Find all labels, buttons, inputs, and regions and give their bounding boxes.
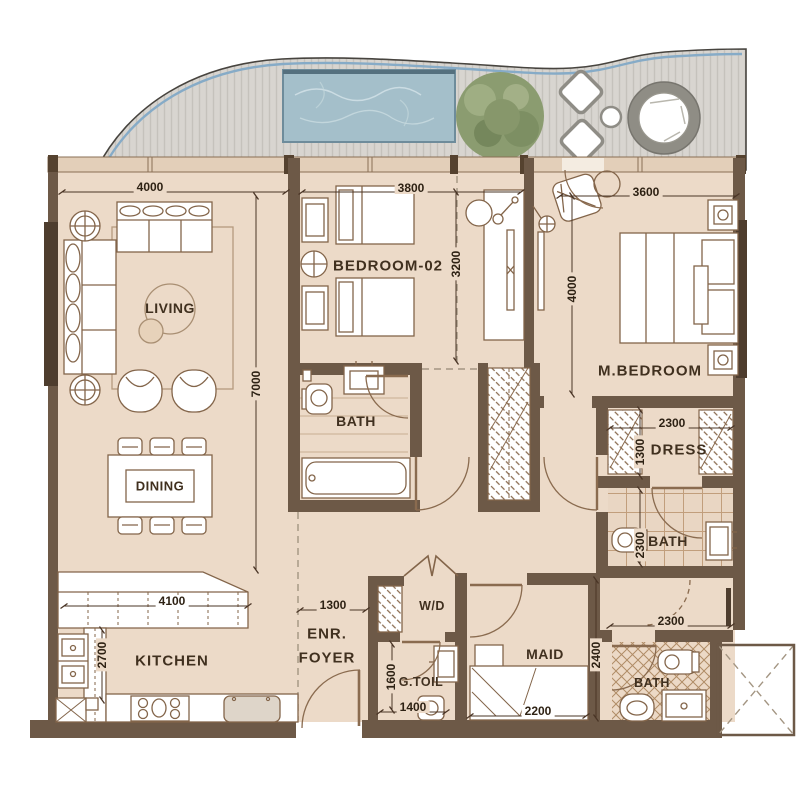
dim-foyer-width: 1300 <box>317 599 350 611</box>
room-label-kitchen: KITCHEN <box>135 654 209 669</box>
dim-dress-height: 1300 <box>634 436 646 469</box>
dim-bedroom2-width: 3800 <box>395 182 428 194</box>
window-wall-band <box>48 155 746 174</box>
dim-maid-height: 2400 <box>590 639 602 672</box>
room-label-bedroom2: BEDROOM-02 <box>333 259 443 274</box>
dim-master-bath-height: 2300 <box>634 529 646 562</box>
dim-master-bath-width: 2300 <box>655 615 688 627</box>
service-shaft <box>718 645 794 735</box>
room-label-living: LIVING <box>145 301 195 315</box>
room-label-maid-bath: BATH <box>634 677 670 690</box>
room-label-gtoilet: G.TOIL <box>399 676 443 689</box>
room-label-master-bedroom: M.BEDROOM <box>598 364 702 379</box>
room-label-dining: DINING <box>136 480 185 493</box>
terrace-tree <box>456 72 544 160</box>
room-label-maid: MAID <box>526 647 564 661</box>
dim-gtoil-height: 1600 <box>385 661 397 694</box>
room-label-bath2: BATH <box>336 414 376 428</box>
dim-dress-width: 2300 <box>656 417 689 429</box>
dim-living-width: 4000 <box>134 181 167 193</box>
dim-maid-bed-width: 2200 <box>522 705 555 717</box>
room-label-wd: W/D <box>419 600 445 613</box>
hall-wardrobe <box>488 368 530 500</box>
dim-bedroom2-height: 3200 <box>450 248 462 281</box>
dim-kitchen-height: 2700 <box>96 639 108 672</box>
pool <box>283 70 455 142</box>
room-label-dress: DRESS <box>651 443 708 458</box>
dim-gtoil-width: 1400 <box>397 701 430 713</box>
dim-master-height: 4000 <box>566 273 578 306</box>
room-label-master-bath: BATH <box>648 534 688 548</box>
dim-kitchen-width: 4100 <box>156 595 189 607</box>
room-label-foyer-line1: ENR. <box>307 627 347 642</box>
dim-master-width: 3600 <box>630 186 663 198</box>
dim-living-height: 7000 <box>250 368 262 401</box>
room-label-foyer-line2: FOYER <box>299 651 356 666</box>
floor-plan: LIVING DINING BEDROOM-02 M.BEDROOM BATH … <box>0 0 800 800</box>
